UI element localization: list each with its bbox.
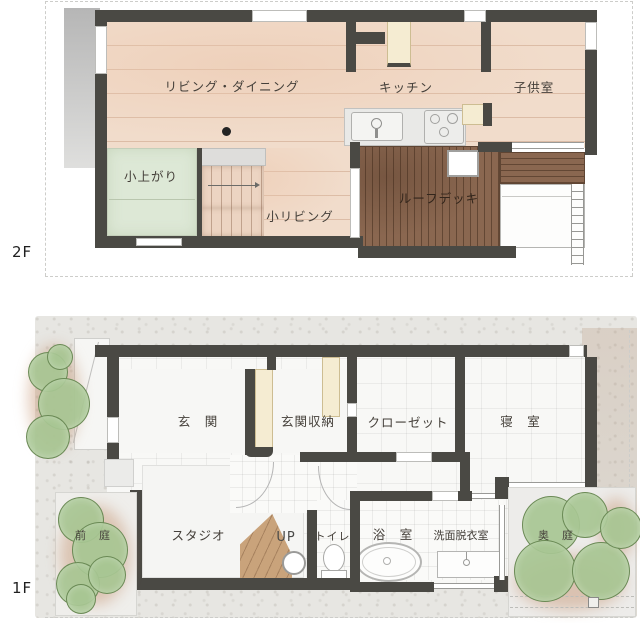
tree — [600, 507, 640, 549]
wall-segment — [245, 369, 255, 455]
entrance-door-marker — [107, 417, 119, 443]
bathtub-drain-icon — [383, 557, 391, 565]
tree — [514, 540, 576, 602]
room-label-toilet: トイレ — [310, 531, 355, 542]
wall-segment — [300, 452, 460, 462]
floor-marker-1f: 1F — [12, 581, 32, 596]
wall-segment — [95, 345, 587, 357]
garden-drain — [588, 597, 599, 608]
door-marker — [396, 452, 432, 462]
window-marker — [569, 345, 584, 357]
entrance-step — [104, 459, 134, 487]
room-label-entrance-storage: 玄関収納 — [266, 416, 350, 429]
room-label-washroom: 洗面脱衣室 — [420, 530, 502, 541]
window-marker — [499, 505, 505, 580]
door-marker — [347, 403, 357, 417]
wall-segment — [350, 582, 434, 592]
wall-segment — [130, 578, 360, 590]
stair-newel-post — [282, 551, 306, 575]
wall-segment — [347, 357, 357, 403]
room-label-bath: 浴 室 — [358, 529, 428, 542]
room-label-bedroom: 寝 室 — [478, 416, 563, 429]
room-label-back-garden: 奥 庭 — [528, 530, 584, 541]
entrance-closet — [255, 369, 273, 449]
wall-segment — [107, 443, 119, 459]
tree — [88, 556, 126, 594]
wall-segment — [267, 357, 276, 370]
wall-segment — [350, 491, 432, 501]
washbasin-faucet-stem — [466, 552, 467, 560]
wall-segment — [350, 501, 360, 590]
wall-segment — [458, 491, 472, 501]
tree — [26, 415, 70, 459]
tree — [66, 584, 96, 614]
storage-closet — [322, 357, 340, 417]
paving-joint-line — [510, 607, 634, 608]
room-label-up: UP — [271, 531, 301, 544]
tree — [47, 344, 73, 370]
washbasin-faucet-icon — [463, 559, 470, 566]
room-label-studio: スタジオ — [156, 530, 241, 543]
wall-segment — [495, 477, 509, 499]
room-label-front-garden: 前 庭 — [65, 530, 121, 541]
wall-segment — [107, 357, 119, 417]
toilet-fixture — [323, 544, 345, 572]
floor-plan-canvas: リビング・ダイニング キッチン 子供室 小上がり 小リビング ルーフデッキ 2F — [0, 0, 640, 623]
first-floor-plan: 玄 関 玄関収納 クローゼット 寝 室 スタジオ UP トイレ 浴 室 洗面脱衣… — [0, 0, 640, 623]
room-label-closet: クローゼット — [360, 417, 456, 430]
wall-segment — [245, 447, 273, 457]
wall-segment — [455, 348, 465, 454]
room-entrance — [119, 369, 245, 453]
tree — [572, 542, 630, 600]
room-label-entrance: 玄 関 — [158, 416, 238, 429]
wall-segment — [585, 357, 597, 487]
site-boundary-line — [45, 617, 633, 618]
door-marker — [432, 491, 460, 501]
window-marker — [434, 583, 496, 589]
